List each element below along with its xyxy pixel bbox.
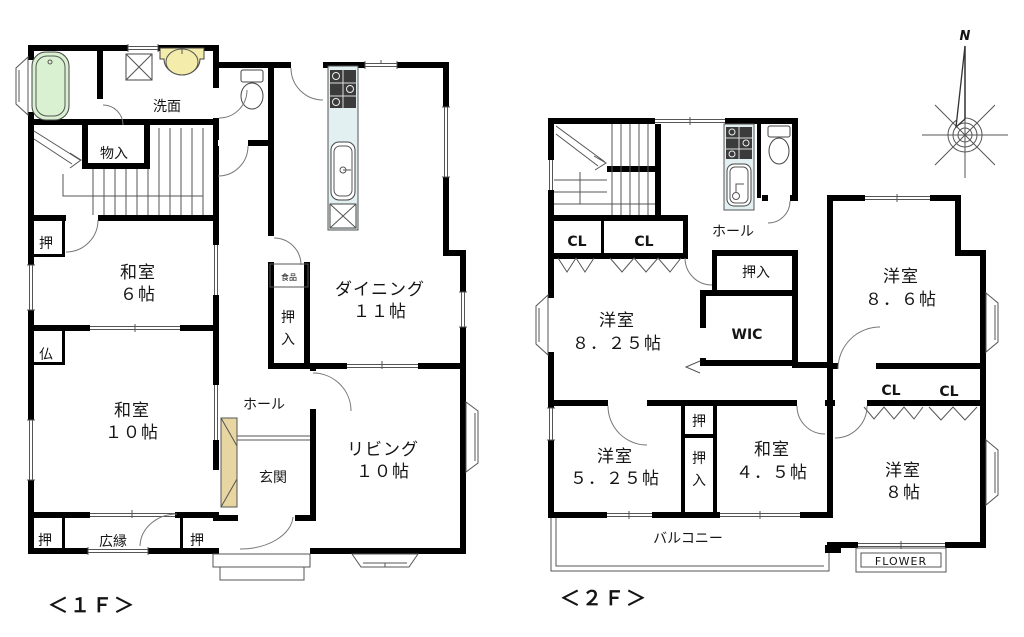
stairs-1f [34, 128, 203, 215]
room-label-balcony: バルコニー [653, 531, 723, 547]
kitchen-sink-2f-icon [727, 164, 751, 206]
north-label: N [960, 29, 971, 44]
toilet-2f-icon [768, 126, 790, 164]
kitchen-sink-1f-icon [331, 142, 355, 200]
stove-2f-icon [726, 127, 752, 159]
room-label-yoshitsu525: 洋室 [597, 447, 633, 467]
north-needle-icon [956, 46, 965, 127]
room-label-dining: ダイニング [335, 280, 425, 300]
flower-box-label: FLOWER [875, 555, 927, 568]
room-size-washitsu45: ４．５帖 [736, 463, 808, 483]
room-size-yoshitsu86: ８．６帖 [865, 290, 937, 310]
kitchen-counter-1f [328, 66, 358, 230]
floorplan-svg: 洗面 物入 押 和室 ６帖 仏 和室 １０帖 押 広縁 押 ホール 玄関 リビン… [0, 0, 1024, 637]
floor2-plan: CL CL ホール 押入 洋室 ８．２５帖 WIC 洋室 ８．６帖 CL CL … [536, 117, 998, 610]
kitchen-counter-2f [724, 124, 754, 210]
room-size-dining: １１帖 [353, 302, 407, 322]
closet-label-oshi-small: 押 [692, 414, 706, 430]
washing-machine-icon [126, 54, 152, 80]
room-size-living: １０帖 [356, 462, 410, 482]
room-size-washitsu10: １０帖 [105, 423, 159, 443]
room-label-oshiire-1f-2: 入 [281, 332, 295, 348]
room-label-oshi-right: 押 [190, 533, 204, 549]
compass-rose: N [922, 29, 1008, 178]
room-label-pantry: 食品 [281, 272, 297, 282]
room-label-oshi-upper: 押 [39, 236, 53, 252]
floor2-caption: ＜２Ｆ＞ [560, 586, 648, 610]
cross-box-icon [330, 204, 356, 228]
washbasin-icon [160, 48, 204, 75]
stove-icon [330, 70, 356, 108]
closet-label-oshiire-v2: 入 [692, 473, 706, 489]
room-label-genkan: 玄関 [259, 469, 287, 486]
room-label-washitsu10: 和室 [114, 401, 150, 421]
bathtub-icon [32, 52, 69, 120]
shoe-cabinet-icon [221, 418, 237, 507]
room-label-oshiire-2f: 押入 [742, 265, 770, 281]
floor-plan-page: 洗面 物入 押 和室 ６帖 仏 和室 １０帖 押 広縁 押 ホール 玄関 リビン… [0, 0, 1024, 637]
room-label-wic: WIC [732, 327, 763, 343]
closet-label-cl-c: CL [881, 383, 900, 399]
closet-label-cl-a: CL [567, 234, 586, 250]
room-label-hiroen: 広縁 [99, 534, 127, 550]
room-label-monoiri: 物入 [100, 146, 128, 162]
room-label-hall-2f: ホール [712, 224, 754, 240]
floor1-plan: 洗面 物入 押 和室 ６帖 仏 和室 １０帖 押 広縁 押 ホール 玄関 リビン… [16, 44, 478, 617]
floor1-caption: ＜１Ｆ＞ [48, 593, 136, 617]
closet-label-oshiire-v1: 押 [692, 451, 706, 467]
room-label-washitsu45: 和室 [754, 440, 790, 460]
room-label-oshiire-1f-1: 押 [281, 310, 295, 326]
room-label-yoshitsu86: 洋室 [883, 267, 919, 287]
closet-label-cl-d: CL [939, 384, 958, 400]
room-size-yoshitsu525: ５．２５帖 [570, 469, 660, 489]
closet-label-cl-b: CL [634, 234, 653, 250]
room-size-yoshitsu825: ８．２５帖 [572, 334, 662, 354]
room-label-butsudan: 仏 [39, 347, 53, 363]
room-size-yoshitsu8: ８帖 [885, 483, 921, 503]
room-label-living: リビング [347, 440, 419, 460]
room-label-hall-1f: ホール [243, 397, 285, 413]
door-openings-floor1 [66, 62, 323, 521]
room-label-yoshitsu825: 洋室 [599, 311, 635, 331]
entrance-porch-steps [213, 554, 310, 580]
room-size-washitsu6: ６帖 [120, 285, 156, 305]
room-label-senmen: 洗面 [153, 99, 181, 115]
room-label-yoshitsu8: 洋室 [885, 461, 921, 481]
room-label-washitsu6: 和室 [120, 263, 156, 283]
room-label-oshi-left: 押 [38, 533, 52, 549]
